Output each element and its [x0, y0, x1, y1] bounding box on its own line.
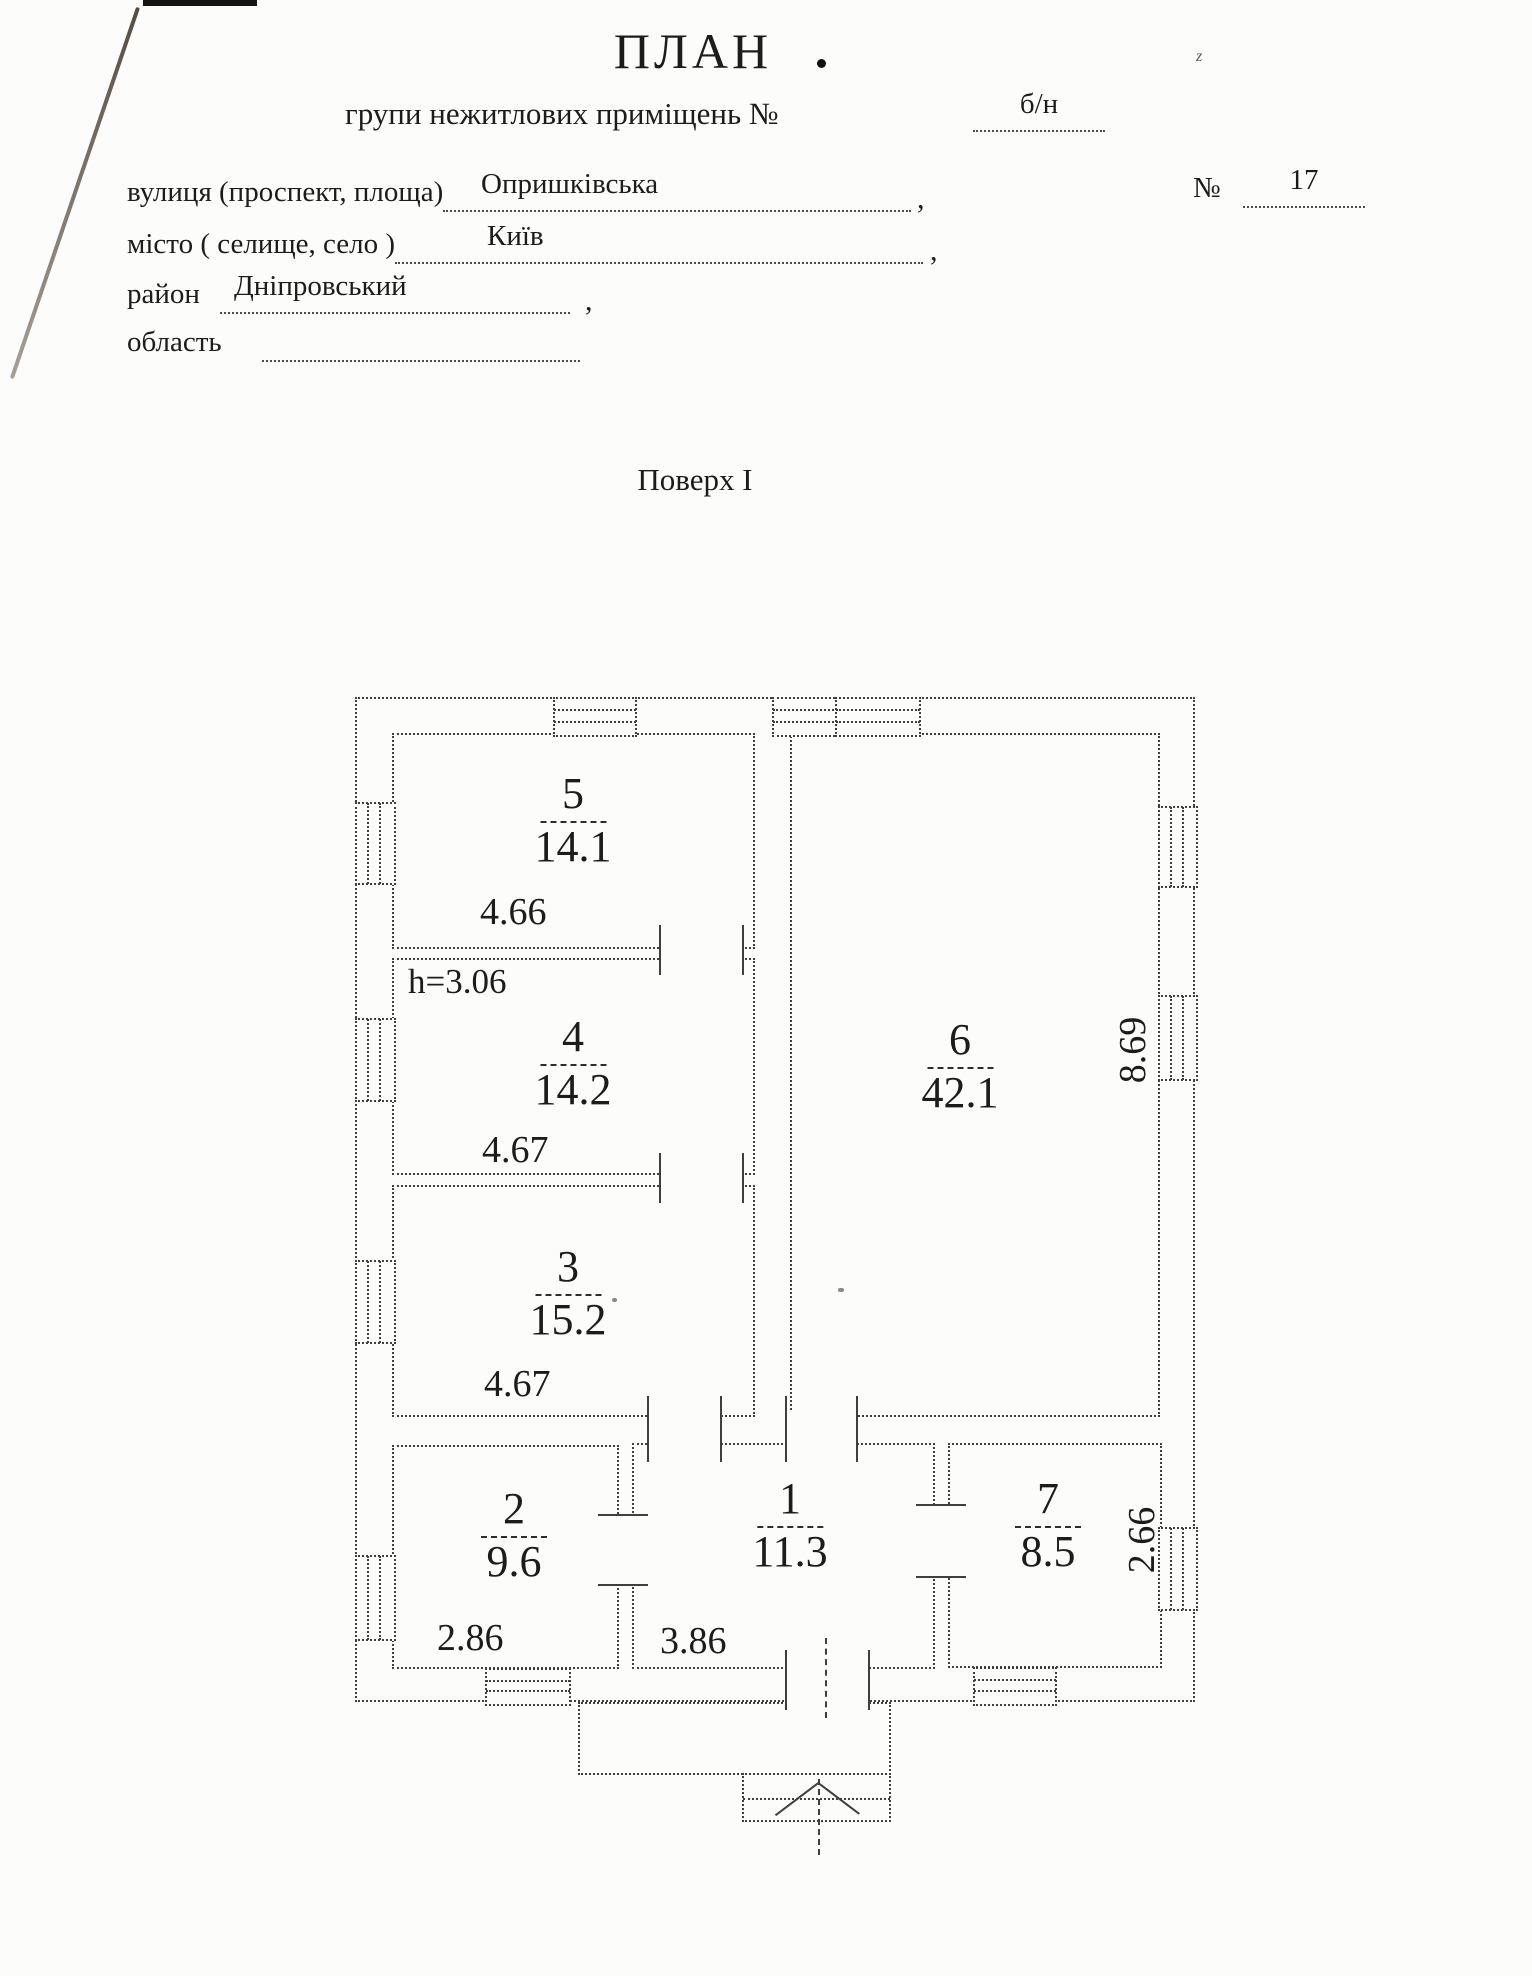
city-comma: ,	[930, 234, 938, 268]
room-5-number: 5	[562, 772, 584, 817]
district-field-value: Дніпровський	[220, 270, 570, 314]
door-jamb-tick	[856, 1396, 858, 1462]
room-4-width-dim: 4.67	[482, 1128, 549, 1172]
door-opening-room3-hall	[648, 1411, 722, 1449]
door-jamb-tick	[659, 1153, 661, 1203]
room-2-width-dim: 2.86	[437, 1616, 504, 1660]
wall-junction-box-top	[772, 697, 839, 737]
ceiling-height-note: h=3.06	[408, 962, 507, 1002]
region-field-label: область	[127, 326, 222, 359]
house-number-value: 17	[1243, 164, 1365, 208]
room-3-label: 3 15.2	[530, 1245, 607, 1343]
room-7-label: 7 8.5	[1015, 1477, 1081, 1575]
door-jamb-tick	[647, 1396, 649, 1462]
door-jamb-tick	[598, 1514, 648, 1516]
room-3-area: 15.2	[530, 1298, 607, 1343]
window-symbol-top-room5	[553, 697, 637, 737]
room-5-label: 5 14.1	[535, 772, 612, 870]
door-jamb-tick	[785, 1396, 787, 1462]
region-field-value	[262, 318, 580, 362]
door-jamb-tick	[916, 1504, 966, 1506]
window-symbol-left-room3	[355, 1260, 396, 1344]
window-symbol-right-room6-upper	[1158, 806, 1198, 888]
room-7-number: 7	[1037, 1477, 1059, 1522]
street-field-value: Опришківська	[443, 168, 911, 212]
window-symbol-right-room7	[1158, 1527, 1198, 1611]
scanned-plan-document: z ПЛАН групи нежитлових приміщень № б/н …	[0, 0, 1532, 1976]
room-7-depth-dim: 2.66	[1120, 1507, 1164, 1574]
scan-top-strip-artifact	[143, 0, 257, 6]
room-5-width-dim: 4.66	[480, 890, 547, 934]
entrance-door-leaf	[825, 1638, 827, 1718]
entrance-door-opening	[786, 1661, 870, 1705]
door-jamb-tick	[868, 1650, 870, 1710]
scan-edge-artifact	[10, 7, 140, 379]
street-comma: ,	[917, 182, 925, 216]
room-5-area: 14.1	[535, 825, 612, 870]
door-opening-room2-room1	[613, 1515, 636, 1585]
window-symbol-bottom-room7	[973, 1667, 1057, 1706]
room-1-number: 1	[779, 1477, 801, 1522]
room-2-area: 9.6	[487, 1540, 542, 1585]
door-opening-room4-room3	[660, 1169, 744, 1189]
room-6-number: 6	[949, 1018, 971, 1063]
door-jamb-tick	[742, 1153, 744, 1203]
window-symbol-left-room4	[355, 1018, 396, 1102]
entrance-porch	[578, 1702, 891, 1775]
room-3-width-dim: 4.67	[484, 1362, 551, 1406]
door-jamb-tick	[916, 1576, 966, 1578]
document-title: ПЛАН	[558, 22, 828, 80]
premises-number-field: б/н	[973, 88, 1105, 132]
room-6-label: 6 42.1	[922, 1018, 999, 1116]
street-field-label: вулиця (проспект, площа)	[127, 176, 443, 209]
window-symbol-left-room5	[355, 802, 396, 885]
window-symbol-left-room2	[355, 1555, 396, 1641]
window-symbol-right-room6-lower	[1158, 995, 1198, 1081]
room-6-area: 42.1	[922, 1071, 999, 1116]
house-number-label: №	[1193, 172, 1221, 205]
district-field-label: район	[127, 278, 200, 311]
room-1-label: 1 11.3	[752, 1477, 827, 1575]
room-4-area: 14.2	[535, 1068, 612, 1113]
room-4-number: 4	[562, 1015, 584, 1060]
room-2-label: 2 9.6	[481, 1487, 547, 1585]
door-jamb-tick	[598, 1584, 648, 1586]
door-jamb-tick	[659, 925, 661, 975]
step-line	[743, 1798, 890, 1800]
door-opening-room1-room7	[929, 1505, 952, 1577]
window-symbol-top-room6	[835, 697, 921, 737]
room-3-number: 3	[557, 1245, 579, 1290]
room-6-depth-dim: 8.69	[1111, 1017, 1155, 1084]
door-jamb-tick	[742, 925, 744, 975]
room-7-area: 8.5	[1021, 1530, 1076, 1575]
district-comma: ,	[585, 284, 593, 318]
floor-title: Поверх I	[600, 462, 790, 498]
room-1-width-dim: 3.86	[660, 1619, 727, 1663]
city-field-label: місто ( селище, село )	[127, 228, 395, 261]
room-2-number: 2	[503, 1487, 525, 1532]
city-field-value: Київ	[395, 220, 923, 264]
corner-mark-artifact: z	[1196, 48, 1202, 66]
door-opening-room6-room1	[786, 1411, 858, 1449]
window-symbol-bottom-room2	[485, 1668, 571, 1706]
door-jamb-tick	[785, 1650, 787, 1710]
door-opening-room5-room4	[660, 941, 744, 963]
room-1-area: 11.3	[752, 1530, 827, 1575]
room-4-label: 4 14.2	[535, 1015, 612, 1113]
entrance-steps	[742, 1773, 891, 1822]
subtitle-label: групи нежитлових приміщень №	[345, 96, 778, 132]
door-jamb-tick	[720, 1396, 722, 1462]
stairs-up-arrow-icon	[818, 1779, 820, 1855]
